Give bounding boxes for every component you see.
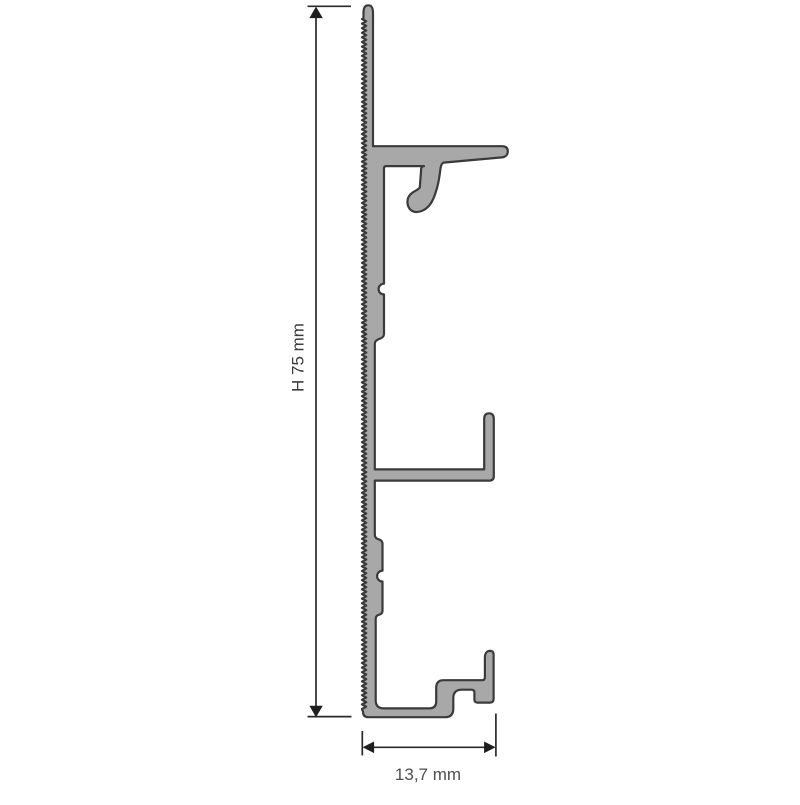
svg-text:13,7 mm: 13,7 mm bbox=[395, 765, 461, 784]
svg-text:H 75 mm: H 75 mm bbox=[288, 323, 307, 392]
